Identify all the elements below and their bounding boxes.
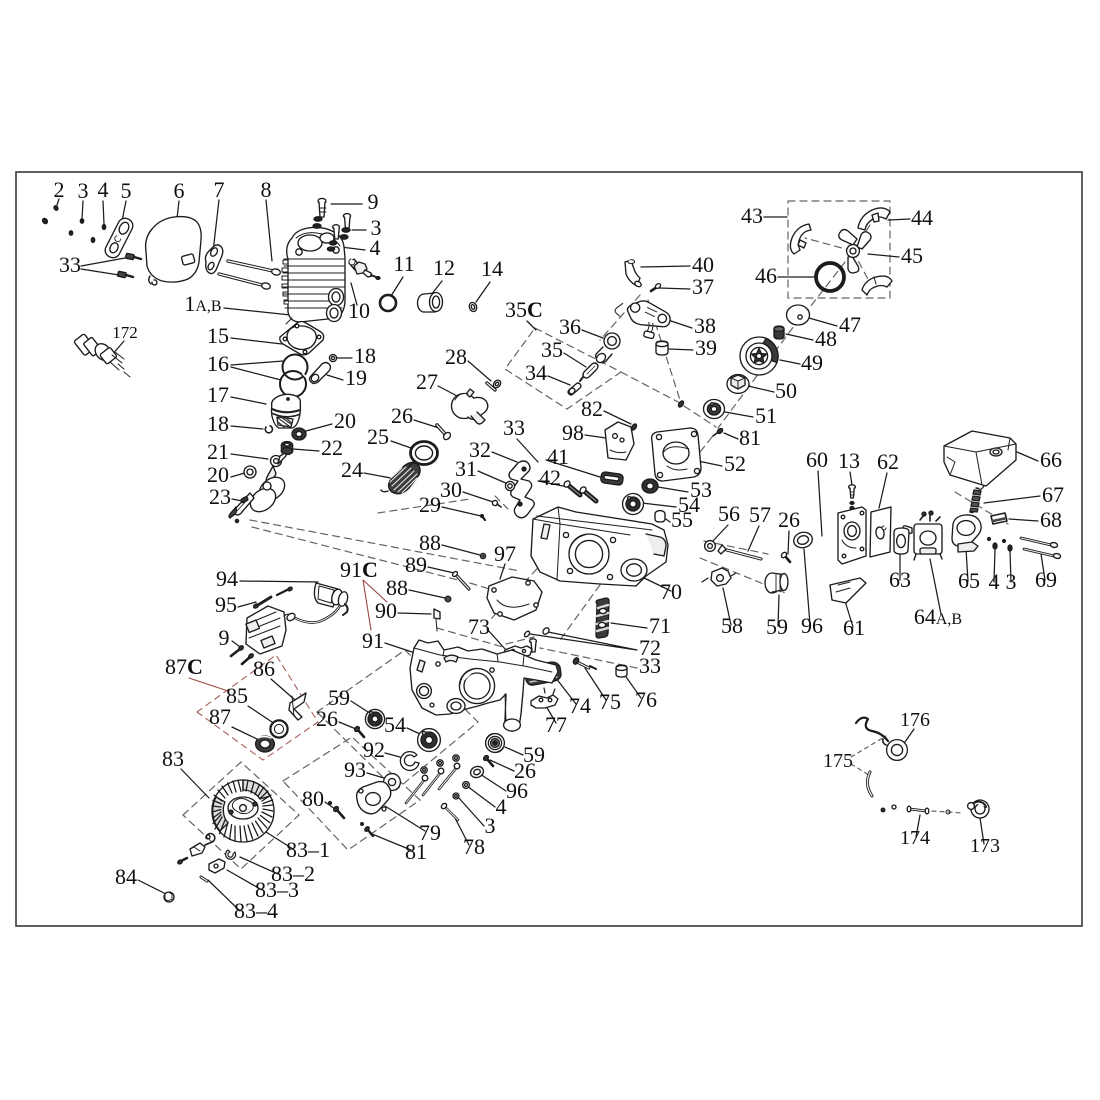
svg-text:67: 67 xyxy=(1042,482,1064,507)
svg-text:91: 91 xyxy=(362,628,384,653)
svg-text:8: 8 xyxy=(261,177,272,202)
svg-text:4: 4 xyxy=(98,177,109,202)
svg-text:45: 45 xyxy=(901,243,923,268)
svg-text:50: 50 xyxy=(775,378,797,403)
svg-text:27: 27 xyxy=(416,369,438,394)
svg-text:83–1: 83–1 xyxy=(286,837,330,862)
svg-text:88: 88 xyxy=(386,575,408,600)
svg-text:22: 22 xyxy=(321,435,343,460)
svg-text:2: 2 xyxy=(54,177,65,202)
svg-text:42: 42 xyxy=(539,465,561,490)
svg-text:43: 43 xyxy=(741,203,763,228)
svg-text:172: 172 xyxy=(112,323,138,342)
svg-text:97: 97 xyxy=(494,541,516,566)
svg-text:4: 4 xyxy=(496,794,507,819)
svg-text:13: 13 xyxy=(838,448,860,473)
svg-text:65: 65 xyxy=(958,568,980,593)
svg-text:7: 7 xyxy=(214,177,225,202)
svg-text:87: 87 xyxy=(209,704,231,729)
svg-text:92: 92 xyxy=(363,737,385,762)
svg-text:26: 26 xyxy=(391,403,413,428)
svg-text:96: 96 xyxy=(801,613,823,638)
svg-text:4: 4 xyxy=(370,235,381,260)
svg-text:18: 18 xyxy=(207,411,229,436)
svg-text:35C: 35C xyxy=(505,297,543,322)
svg-text:28: 28 xyxy=(445,344,467,369)
svg-text:54: 54 xyxy=(384,712,406,737)
svg-text:95: 95 xyxy=(215,592,237,617)
svg-text:70: 70 xyxy=(660,579,682,604)
svg-text:56: 56 xyxy=(718,501,740,526)
svg-text:59: 59 xyxy=(766,614,788,639)
svg-text:176: 176 xyxy=(900,709,930,731)
svg-text:3: 3 xyxy=(1006,569,1017,594)
svg-text:63: 63 xyxy=(889,567,911,592)
svg-text:74: 74 xyxy=(569,693,591,718)
svg-text:10: 10 xyxy=(348,298,370,323)
svg-text:44: 44 xyxy=(911,205,933,230)
svg-text:48: 48 xyxy=(815,326,837,351)
svg-text:87C: 87C xyxy=(165,654,203,679)
svg-text:93: 93 xyxy=(344,757,366,782)
svg-text:33: 33 xyxy=(503,415,525,440)
svg-text:77: 77 xyxy=(545,712,567,737)
svg-text:34: 34 xyxy=(525,360,547,385)
svg-text:21: 21 xyxy=(207,439,229,464)
svg-text:26: 26 xyxy=(778,507,800,532)
svg-text:73: 73 xyxy=(468,614,490,639)
svg-text:86: 86 xyxy=(253,656,275,681)
svg-text:49: 49 xyxy=(801,350,823,375)
svg-text:23: 23 xyxy=(209,484,231,509)
svg-text:4: 4 xyxy=(989,569,1000,594)
svg-text:9: 9 xyxy=(368,189,379,214)
svg-text:55: 55 xyxy=(671,507,693,532)
svg-text:90: 90 xyxy=(375,598,397,623)
svg-text:58: 58 xyxy=(721,613,743,638)
svg-text:24: 24 xyxy=(341,457,363,482)
svg-text:173: 173 xyxy=(970,835,1000,857)
svg-text:12: 12 xyxy=(433,255,455,280)
svg-text:80: 80 xyxy=(302,786,324,811)
svg-text:16: 16 xyxy=(207,351,229,376)
svg-text:62: 62 xyxy=(877,449,899,474)
svg-text:26: 26 xyxy=(316,706,338,731)
svg-text:20: 20 xyxy=(334,408,356,433)
svg-text:83–4: 83–4 xyxy=(234,898,278,923)
svg-text:3: 3 xyxy=(485,813,496,838)
svg-text:19: 19 xyxy=(345,365,367,390)
svg-text:11: 11 xyxy=(393,251,414,276)
svg-text:59: 59 xyxy=(523,742,545,767)
svg-text:25: 25 xyxy=(367,424,389,449)
svg-text:3: 3 xyxy=(78,178,89,203)
svg-text:6: 6 xyxy=(174,178,185,203)
svg-text:52: 52 xyxy=(724,451,746,476)
svg-text:66: 66 xyxy=(1040,447,1062,472)
svg-text:35: 35 xyxy=(541,337,563,362)
svg-text:81: 81 xyxy=(739,425,761,450)
svg-text:89: 89 xyxy=(405,552,427,577)
svg-text:29: 29 xyxy=(419,492,441,517)
svg-text:94: 94 xyxy=(216,566,238,591)
svg-text:60: 60 xyxy=(806,447,828,472)
svg-text:5: 5 xyxy=(121,178,132,203)
svg-text:175: 175 xyxy=(823,750,853,772)
svg-text:47: 47 xyxy=(839,312,861,337)
svg-text:78: 78 xyxy=(463,834,485,859)
svg-text:174: 174 xyxy=(900,827,930,849)
svg-text:82: 82 xyxy=(581,396,603,421)
svg-text:57: 57 xyxy=(749,502,771,527)
svg-text:81: 81 xyxy=(405,839,427,864)
svg-text:39: 39 xyxy=(695,335,717,360)
svg-text:32: 32 xyxy=(469,437,491,462)
svg-text:76: 76 xyxy=(635,687,657,712)
svg-text:36: 36 xyxy=(559,314,581,339)
svg-text:91C: 91C xyxy=(340,557,378,582)
svg-text:75: 75 xyxy=(599,689,621,714)
svg-text:68: 68 xyxy=(1040,507,1062,532)
svg-text:46: 46 xyxy=(755,263,777,288)
svg-text:98: 98 xyxy=(562,420,584,445)
svg-text:37: 37 xyxy=(692,274,714,299)
svg-text:17: 17 xyxy=(207,382,229,407)
svg-text:9: 9 xyxy=(219,625,230,650)
svg-text:83: 83 xyxy=(162,746,184,771)
svg-text:61: 61 xyxy=(843,615,865,640)
svg-text:69: 69 xyxy=(1035,567,1057,592)
svg-text:15: 15 xyxy=(207,323,229,348)
svg-text:33: 33 xyxy=(639,653,661,678)
svg-text:84: 84 xyxy=(115,864,137,889)
svg-text:33: 33 xyxy=(59,252,81,277)
svg-text:14: 14 xyxy=(481,256,503,281)
